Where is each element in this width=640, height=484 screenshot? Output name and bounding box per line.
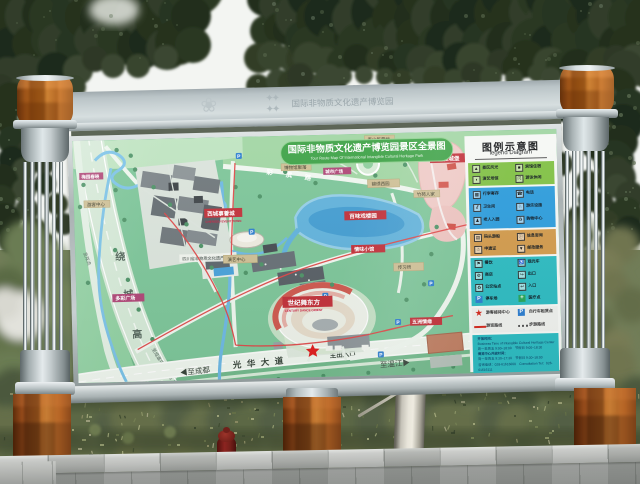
svg-text:情味小馆: 情味小馆 [353, 246, 374, 254]
svg-text:绕: 绕 [115, 250, 125, 263]
svg-text:多彩广场: 多彩广场 [115, 295, 135, 303]
svg-text:高: 高 [132, 327, 142, 340]
svg-text:五洲情缘: 五洲情缘 [412, 318, 432, 326]
